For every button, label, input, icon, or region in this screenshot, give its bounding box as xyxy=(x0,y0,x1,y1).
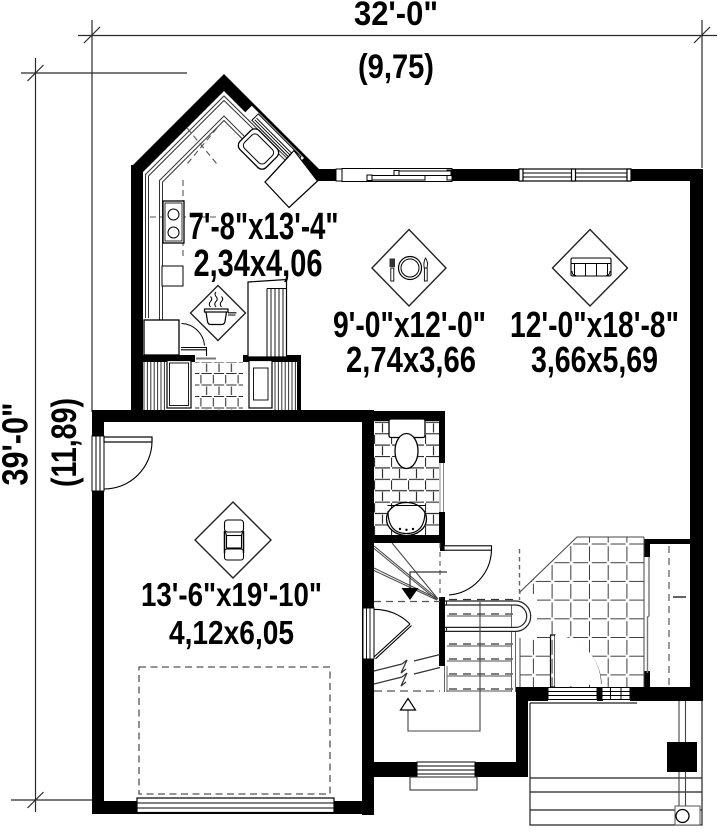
svg-text:3,66x5,69: 3,66x5,69 xyxy=(531,339,658,380)
svg-text:(11,89): (11,89) xyxy=(45,398,84,487)
svg-text:2,74x3,66: 2,74x3,66 xyxy=(346,339,476,380)
svg-text:39'-0": 39'-0" xyxy=(0,403,36,486)
svg-text:32'-0": 32'-0" xyxy=(354,0,438,33)
svg-text:4,12x6,05: 4,12x6,05 xyxy=(169,614,294,651)
svg-text:7'-8"x13'-4": 7'-8"x13'-4" xyxy=(189,206,339,248)
svg-text:(9,75): (9,75) xyxy=(358,48,434,86)
svg-text:2,34x4,06: 2,34x4,06 xyxy=(194,243,323,285)
svg-text:13'-6"x19'-10": 13'-6"x19'-10" xyxy=(141,576,322,613)
